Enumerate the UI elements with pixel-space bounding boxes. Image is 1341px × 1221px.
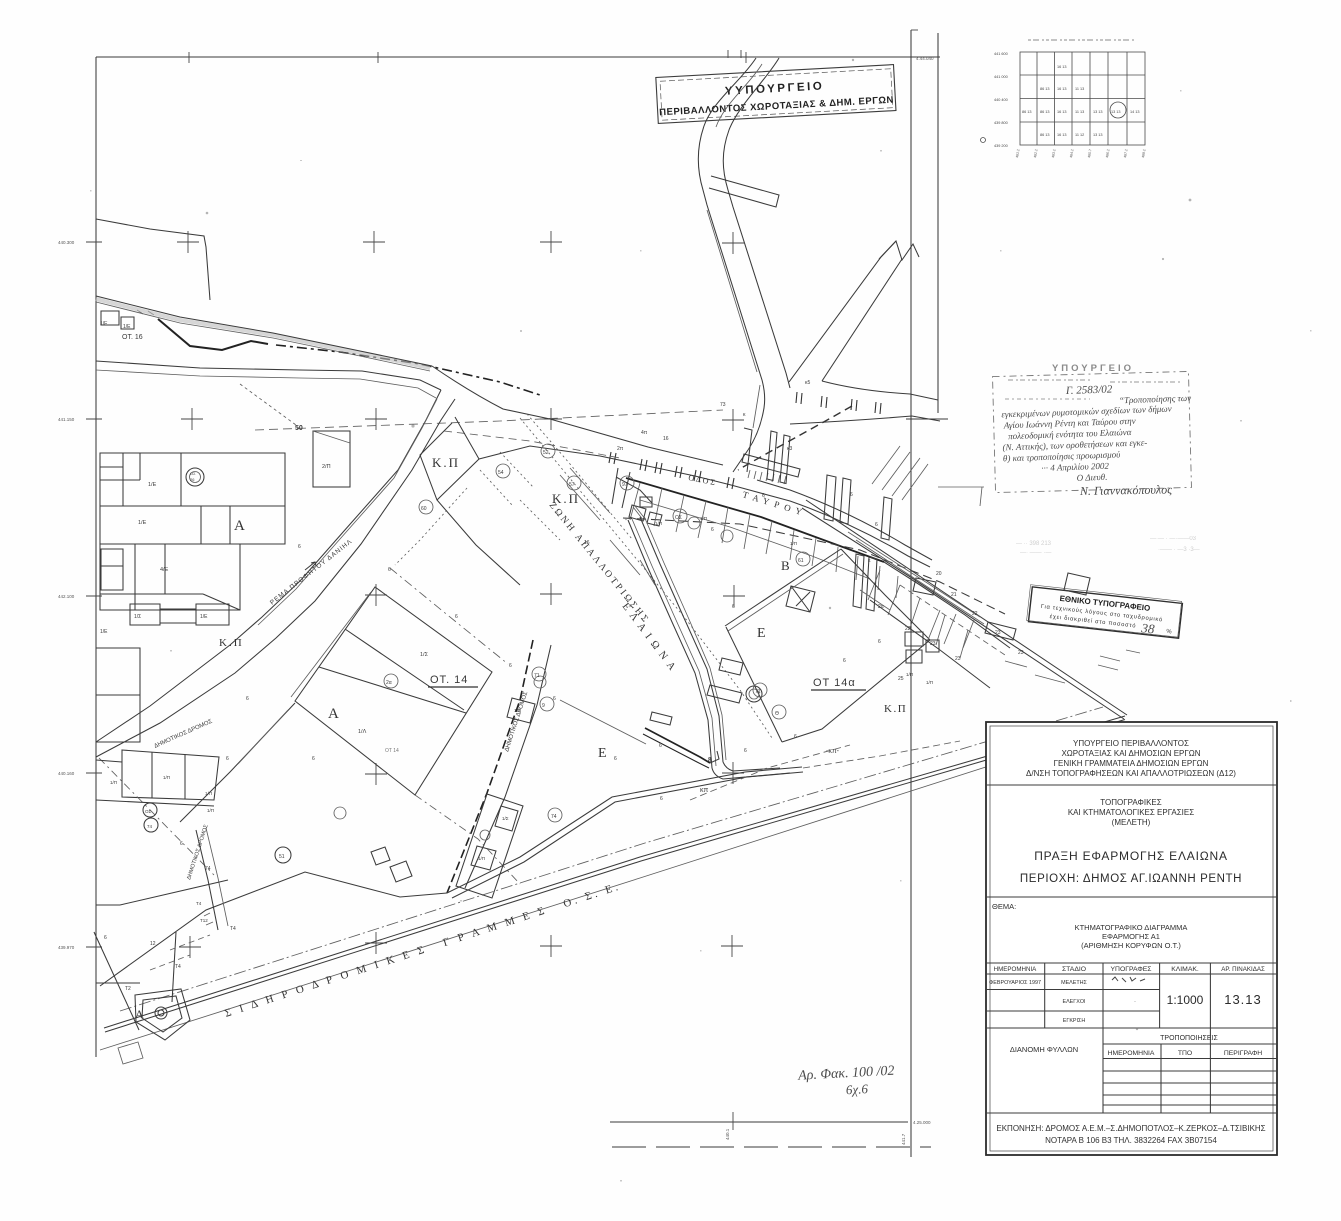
svg-text:6: 6: [875, 522, 878, 528]
svg-text:1/Π: 1/Π: [207, 808, 214, 813]
svg-text:440.1: 440.1: [725, 1128, 730, 1140]
svg-text:ΧΩΡΟΤΑΞΙΑΣ ΚΑΙ ΔΗΜΟΣΙΩΝ ΕΡΓΩΝ: ΧΩΡΟΤΑΞΙΑΣ ΚΑΙ ΔΗΜΟΣΙΩΝ ΕΡΓΩΝ: [1061, 749, 1200, 758]
svg-text:13 13: 13 13: [1093, 110, 1103, 114]
svg-text:6: 6: [312, 756, 315, 762]
svg-text:23: 23: [995, 630, 1001, 636]
svg-text:13 13: 13 13: [1093, 133, 1103, 137]
svg-text:6: 6: [104, 935, 107, 941]
svg-text:6: 6: [659, 743, 662, 749]
svg-text:6: 6: [878, 639, 881, 645]
svg-text:439 800: 439 800: [994, 121, 1008, 125]
svg-text:1/Ε: 1/Ε: [148, 482, 157, 488]
svg-text:1/Π: 1/Π: [514, 708, 521, 713]
svg-text:— ·· 398 213: — ·· 398 213: [1016, 541, 1052, 547]
svg-text:23: 23: [930, 641, 936, 647]
svg-text:ΥΠΟΥΡΓΕΙΟ ΠΕΡΙΒΑΛΛΟΝΤΟΣ: ΥΠΟΥΡΓΕΙΟ ΠΕΡΙΒΑΛΛΟΝΤΟΣ: [1073, 739, 1189, 748]
svg-text:Α: Α: [234, 518, 245, 534]
svg-text:Τ4: Τ4: [196, 901, 202, 906]
svg-text:—·— · —·——03: —·— · —·——03: [1150, 536, 1197, 542]
svg-text:ΠΕΡΙΟΧΗ: ΔΗΜΟΣ ΑΓ.ΙΩΑΝΝΗ ΡΕΝΤΗ: ΠΕΡΙΟΧΗ: ΔΗΜΟΣ ΑΓ.ΙΩΑΝΝΗ ΡΕΝΤΗ: [1020, 873, 1242, 885]
svg-text:ΜΕΛΕΤΗΣ: ΜΕΛΕΤΗΣ: [1061, 980, 1087, 986]
svg-text:6: 6: [246, 696, 249, 702]
svg-text:57: 57: [569, 482, 575, 488]
svg-text:ΘΕΜΑ:: ΘΕΜΑ:: [992, 902, 1016, 911]
svg-text:Ν. Γιαννακόπουλος: Ν. Γιαννακόπουλος: [1079, 482, 1172, 498]
svg-text:1/Π: 1/Π: [163, 775, 170, 780]
svg-text:51: 51: [279, 854, 285, 860]
svg-text:9: 9: [542, 703, 545, 709]
svg-text:440.300: 440.300: [58, 240, 75, 245]
svg-text:ΦΕΒΡΟΥΑΡΙΟΣ 1997: ΦΕΒΡΟΥΑΡΙΟΣ 1997: [989, 980, 1041, 986]
svg-text:6: 6: [843, 658, 846, 664]
svg-text:ΚΛΙΜΑΚ.: ΚΛΙΜΑΚ.: [1171, 966, 1199, 973]
svg-text:54: 54: [498, 470, 504, 476]
svg-text:ΥΠΟΓΡΑΦΕΣ: ΥΠΟΓΡΑΦΕΣ: [1111, 966, 1152, 973]
svg-text:Γ. 2583/02: Γ. 2583/02: [1065, 383, 1113, 397]
svg-text:ΥΠΟΥΡΓΕΙΟ: ΥΠΟΥΡΓΕΙΟ: [1052, 363, 1134, 374]
svg-text:ΠΡΑΞΗ ΕΦΑΡΜΟΓΗΣ ΕΛΑΙΩΝΑ: ΠΡΑΞΗ ΕΦΑΡΜΟΓΗΣ ΕΛΑΙΩΝΑ: [1034, 849, 1228, 863]
svg-text:6: 6: [614, 756, 617, 762]
svg-text:2/Π: 2/Π: [322, 464, 331, 470]
svg-text:4π: 4π: [641, 430, 648, 436]
svg-text:1/Ε: 1/Ε: [100, 629, 108, 635]
svg-text:ΕΛΕΓΧΟΙ: ΕΛΕΓΧΟΙ: [1062, 999, 1085, 1005]
svg-text:74: 74: [551, 814, 557, 820]
svg-text:16 13: 16 13: [1057, 110, 1067, 114]
svg-text:ΟΤ. 14: ΟΤ. 14: [430, 674, 468, 686]
svg-text:1/Λ: 1/Λ: [358, 729, 367, 735]
svg-text:71: 71: [755, 689, 761, 695]
svg-text:71: 71: [534, 673, 540, 679]
svg-text:1/Π: 1/Π: [205, 791, 212, 796]
svg-text:14 13: 14 13: [1130, 110, 1140, 114]
svg-text:1/Π: 1/Π: [790, 541, 797, 546]
svg-text:11 13: 11 13: [1075, 87, 1084, 91]
svg-text:441.150: 441.150: [58, 417, 75, 422]
svg-text:ΤΟΠΟΓΡΑΦΙΚΕΣ: ΤΟΠΟΓΡΑΦΙΚΕΣ: [1100, 798, 1161, 807]
svg-text:1/Π: 1/Π: [906, 672, 913, 677]
svg-text:1/Ε: 1/Ε: [100, 321, 108, 327]
svg-text:Κ.Π: Κ.Π: [432, 455, 460, 470]
svg-text:2α: 2α: [878, 604, 884, 610]
svg-text:—· —— ·—: —· —— ·—: [1020, 550, 1051, 556]
svg-text:440 400: 440 400: [994, 98, 1008, 102]
svg-text:6: 6: [732, 604, 735, 610]
svg-text:Α: Α: [135, 1007, 144, 1021]
svg-text:Θ: Θ: [775, 711, 779, 717]
svg-text:2π: 2π: [617, 446, 624, 452]
svg-text:25: 25: [898, 676, 904, 682]
svg-text:ΤΠΟ: ΤΠΟ: [1178, 1050, 1192, 1057]
svg-text:·—— · —3 ·3—: ·—— · —3 ·3—: [1158, 547, 1200, 553]
svg-text:74: 74: [147, 824, 153, 829]
svg-text:Τ12: Τ12: [200, 918, 208, 923]
svg-text:2α: 2α: [386, 680, 392, 686]
svg-text:16 13: 16 13: [1057, 87, 1067, 91]
svg-text:38: 38: [1140, 620, 1156, 637]
svg-text:20: 20: [936, 571, 942, 577]
svg-text:6: 6: [180, 841, 183, 847]
svg-text:11 13: 11 13: [1075, 110, 1084, 114]
svg-text:11 12: 11 12: [1075, 133, 1084, 137]
svg-text:1/Π: 1/Π: [110, 780, 117, 785]
svg-text:16 13: 16 13: [1057, 133, 1067, 137]
svg-text:ΕΦΑΡΜΟΓΗΣ Α1: ΕΦΑΡΜΟΓΗΣ Α1: [1102, 932, 1160, 941]
svg-text:6χ.6: 6χ.6: [846, 1081, 869, 1097]
svg-text:6: 6: [226, 756, 229, 762]
svg-text:6: 6: [553, 696, 556, 702]
svg-text:16 13: 16 13: [1057, 65, 1067, 69]
svg-text:1/Ε: 1/Ε: [200, 614, 208, 620]
svg-text:22: 22: [905, 626, 911, 632]
svg-text:ΑΡ. ΠΙΝΑΚΙΔΑΣ: ΑΡ. ΠΙΝΑΚΙΔΑΣ: [1221, 966, 1265, 973]
svg-text:1/Σ: 1/Σ: [502, 816, 509, 821]
svg-text:1/Π: 1/Π: [478, 856, 485, 861]
svg-text:6: 6: [455, 614, 458, 620]
svg-text:ΟΤ 14: ΟΤ 14: [385, 748, 399, 754]
svg-text:16: 16: [584, 540, 590, 546]
svg-text:κ5: κ5: [805, 380, 811, 386]
svg-text:442.100: 442.100: [58, 594, 75, 599]
svg-text:Τ4: Τ4: [230, 926, 236, 932]
svg-text:6: 6: [509, 663, 512, 669]
svg-text:ΚΤΗΜΑΤΟΓΡΑΦΙΚΟ ΔΙΑΓΡΑΜΜΑ: ΚΤΗΜΑΤΟΓΡΑΦΙΚΟ ΔΙΑΓΡΑΜΜΑ: [1075, 923, 1188, 932]
svg-text:1/Π: 1/Π: [655, 521, 662, 526]
svg-text:4/Ε: 4/Ε: [160, 567, 169, 573]
svg-text:21: 21: [951, 592, 957, 598]
svg-text:73: 73: [720, 402, 726, 408]
svg-text:Κ.Π: Κ.Π: [884, 703, 907, 715]
svg-text:439.970: 439.970: [58, 945, 75, 950]
svg-text:ΕΓΚΡΙΣΗ: ΕΓΚΡΙΣΗ: [1063, 1018, 1086, 1024]
svg-text:1:1000: 1:1000: [1167, 993, 1204, 1007]
svg-text:13.13: 13.13: [1224, 992, 1262, 1007]
svg-text:16: 16: [663, 436, 669, 442]
svg-text:Κ.Π: Κ.Π: [219, 637, 244, 649]
svg-text:50: 50: [295, 425, 303, 432]
svg-text:12: 12: [150, 941, 156, 947]
svg-text:Τ2: Τ2: [125, 986, 131, 992]
svg-text:6: 6: [762, 493, 765, 499]
svg-text:Ε: Ε: [757, 626, 766, 641]
svg-text:8: 8: [708, 756, 712, 764]
svg-text:·: ·: [1134, 999, 1136, 1005]
svg-text:439 200: 439 200: [994, 144, 1008, 148]
svg-text:κ3: κ3: [787, 446, 793, 452]
svg-text:23: 23: [1018, 650, 1024, 656]
svg-text:1/Ε: 1/Ε: [123, 324, 131, 330]
svg-text:13 13: 13 13: [1111, 110, 1121, 114]
svg-text:6: 6: [794, 734, 797, 740]
svg-text:ΠΕΡΙΓΡΑΦΗ: ΠΕΡΙΓΡΑΦΗ: [1224, 1050, 1262, 1057]
svg-text:4.44.040: 4.44.040: [916, 56, 934, 61]
svg-text:ΝΟΤΑΡΑ Β 106 Β3 ΤΗΛ. 3832264 F: ΝΟΤΑΡΑ Β 106 Β3 ΤΗΛ. 3832264 FAX 3Β07154: [1045, 1136, 1217, 1145]
svg-text:86 13: 86 13: [1040, 110, 1050, 114]
svg-text:97: 97: [622, 482, 628, 488]
svg-text:86 13: 86 13: [1022, 110, 1032, 114]
svg-text:441 000: 441 000: [994, 75, 1008, 79]
svg-text:ΟΤ 14α: ΟΤ 14α: [813, 677, 856, 689]
svg-text:ΔΙΑΝΟΜΗ ΦΥΛΛΩΝ: ΔΙΑΝΟΜΗ ΦΥΛΛΩΝ: [1010, 1045, 1078, 1054]
svg-text:74: 74: [205, 866, 211, 872]
svg-text:ΕΚΠΟΝΗΣΗ: ΔΡΟΜΟΣ Α.Ε.Μ.–Σ.ΔΗΜΟ: ΕΚΠΟΝΗΣΗ: ΔΡΟΜΟΣ Α.Ε.Μ.–Σ.ΔΗΜΟΠΟΤΛΟΣ–Κ.Ζ…: [996, 1124, 1265, 1133]
svg-text:441 600: 441 600: [994, 52, 1008, 56]
svg-text:61: 61: [798, 558, 804, 564]
svg-text:440.160: 440.160: [58, 771, 75, 776]
svg-text:Τ4: Τ4: [175, 964, 181, 970]
svg-text:1/Π: 1/Π: [700, 516, 707, 521]
svg-text:6: 6: [298, 544, 301, 550]
svg-text:ΟΤ. 16: ΟΤ. 16: [122, 334, 143, 341]
svg-text:Ο Διευθ.: Ο Διευθ.: [1076, 472, 1107, 483]
svg-text:26: 26: [190, 477, 195, 482]
svg-text:6: 6: [711, 527, 714, 533]
svg-text:6: 6: [850, 492, 853, 498]
svg-text:60: 60: [421, 506, 427, 512]
svg-text:ΚΑΙ ΚΤΗΜΑΤΟΛΟΓΙΚΕΣ ΕΡΓΑΣΙΕΣ: ΚΑΙ ΚΤΗΜΑΤΟΛΟΓΙΚΕΣ ΕΡΓΑΣΙΕΣ: [1068, 808, 1194, 817]
svg-text:ΓΕΝΙΚΗ ΓΡΑΜΜΑΤΕΙΑ ΔΗΜΟΣΙΩΝ ΕΡΓ: ΓΕΝΙΚΗ ΓΡΑΜΜΑΤΕΙΑ ΔΗΜΟΣΙΩΝ ΕΡΓΩΝ: [1054, 759, 1209, 768]
svg-text:ΟΣ: ΟΣ: [675, 515, 682, 521]
svg-text:(ΜΕΛΕΤΗ): (ΜΕΛΕΤΗ): [1112, 818, 1151, 827]
svg-text:ΟΣ: ΟΣ: [145, 809, 152, 814]
svg-text:23: 23: [955, 656, 961, 662]
svg-text:86 13: 86 13: [1040, 133, 1050, 137]
svg-text:86 13: 86 13: [1040, 87, 1050, 91]
svg-text:(ΑΡΙΘΜΗΣΗ ΚΟΡΥΦΩΝ Ο.Τ.): (ΑΡΙΘΜΗΣΗ ΚΟΡΥΦΩΝ Ο.Τ.): [1081, 941, 1181, 950]
svg-text:Ε: Ε: [598, 746, 607, 761]
svg-text:4.25.000: 4.25.000: [913, 1120, 931, 1125]
svg-text:441.7: 441.7: [901, 1133, 906, 1145]
svg-text:1/Π: 1/Π: [926, 680, 933, 685]
svg-text:52: 52: [543, 450, 549, 456]
svg-text:22: 22: [972, 611, 978, 617]
svg-text:1/Σ: 1/Σ: [134, 614, 141, 620]
svg-text:1/Σ: 1/Σ: [420, 652, 429, 658]
svg-text:ΗΜΕΡΟΜΗΝΙΑ: ΗΜΕΡΟΜΗΝΙΑ: [1108, 1050, 1155, 1057]
svg-text:1/Ε: 1/Ε: [138, 520, 147, 526]
svg-text:6: 6: [388, 567, 391, 573]
svg-text:ΟΣ: ΟΣ: [190, 471, 196, 476]
svg-text:Δ/ΝΣΗ ΤΟΠΟΓΡΑΦΗΣΕΩΝ ΚΑΙ ΑΠΑΛΛΟ: Δ/ΝΣΗ ΤΟΠΟΓΡΑΦΗΣΕΩΝ ΚΑΙ ΑΠΑΛΛΟΤΡΙΩΣΕΩΝ (…: [1026, 769, 1236, 778]
svg-text:Β: Β: [781, 558, 790, 573]
svg-text:ΣΤΑΔΙΟ: ΣΤΑΔΙΟ: [1062, 966, 1086, 973]
svg-text:κπ: κπ: [700, 787, 709, 794]
svg-text:Α: Α: [328, 706, 339, 722]
svg-text:6: 6: [744, 748, 747, 754]
svg-text:6: 6: [660, 796, 663, 802]
svg-text:ΗΜΕΡΟΜΗΝΙΑ: ΗΜΕΡΟΜΗΝΙΑ: [994, 966, 1037, 973]
svg-text:ΤΡΟΠΟΠΟΙΗΣΕΙΣ: ΤΡΟΠΟΠΟΙΗΣΕΙΣ: [1160, 1035, 1218, 1042]
